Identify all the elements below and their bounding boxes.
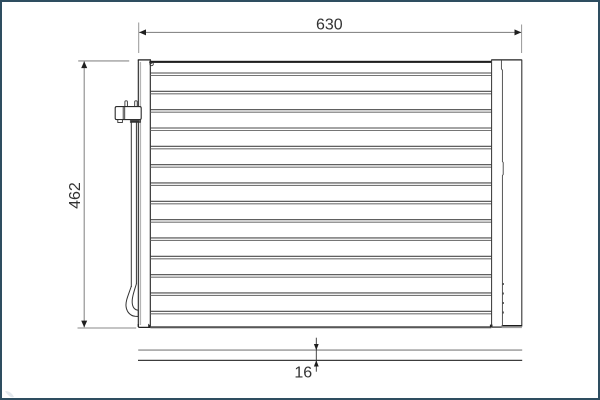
svg-text:462: 462: [67, 182, 84, 209]
svg-text:630: 630: [316, 17, 343, 34]
svg-text:16: 16: [294, 364, 312, 381]
